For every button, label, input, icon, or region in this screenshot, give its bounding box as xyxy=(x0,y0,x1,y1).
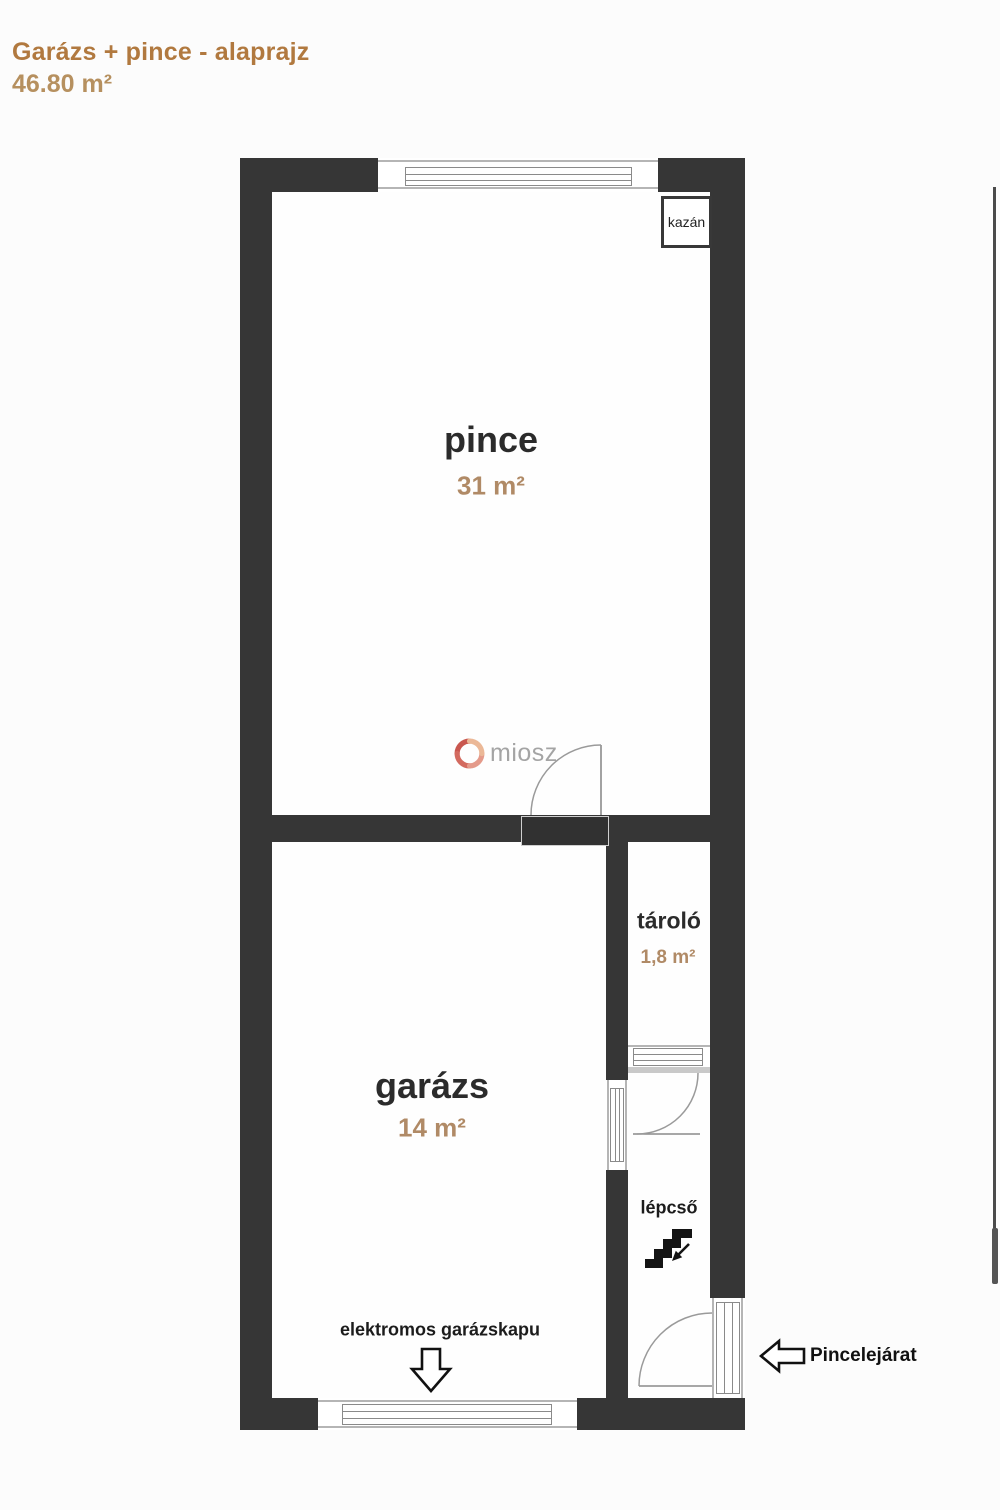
area-label-pince: 31 m² xyxy=(457,471,525,502)
door-leaf-symbol xyxy=(716,1302,740,1394)
page-title: Garázs + pince - alaprajz xyxy=(12,36,310,68)
header: Garázs + pince - alaprajz 46.80 m² xyxy=(12,36,310,100)
wall-bottom-left xyxy=(240,1398,318,1430)
scrollbar-thumb[interactable] xyxy=(992,1228,998,1284)
window-frame-line xyxy=(628,1045,710,1047)
room-label-tarolo: tároló xyxy=(637,908,701,935)
floorplan-page: Garázs + pince - alaprajz 46.80 m² xyxy=(0,0,1000,1510)
window-frame-line xyxy=(378,187,658,189)
area-label-tarolo: 1,8 m² xyxy=(641,947,696,969)
garage-door-label: elektromos garázskapu xyxy=(340,1320,540,1341)
wall-pince-garage-divider xyxy=(272,815,710,842)
storage-door-opening xyxy=(628,1043,710,1073)
heart-icon: ♥ xyxy=(465,741,472,753)
wall-garage-storage-divider xyxy=(606,842,628,1080)
door-leaf-symbol xyxy=(633,1048,703,1066)
plan-background xyxy=(240,158,745,1430)
garage-door-symbol xyxy=(342,1404,552,1425)
boiler-label: kazán xyxy=(668,214,705,230)
room-label-pince: pince xyxy=(444,419,538,461)
window-glass-symbol xyxy=(405,167,632,186)
entrance-label: Pincelejárat xyxy=(810,1345,917,1367)
room-label-garazs: garázs xyxy=(375,1065,489,1107)
wall-bottom-right xyxy=(577,1398,745,1430)
door-frame-line xyxy=(712,1298,714,1398)
door-frame-line xyxy=(318,1426,577,1428)
boiler-box: kazán xyxy=(661,196,712,248)
room-label-lepcso: lépcső xyxy=(640,1198,697,1219)
left-arrow-icon xyxy=(761,1341,804,1371)
garage-stairwell-window xyxy=(606,1080,628,1170)
door-frame-line xyxy=(318,1400,577,1402)
wall-garage-stair-divider xyxy=(606,1170,628,1398)
top-window xyxy=(378,158,658,192)
watermark-logo-icon: ♥ xyxy=(453,737,486,770)
sill-band xyxy=(628,1067,710,1073)
window-frame-line xyxy=(378,160,658,162)
watermark: ♥ miosz xyxy=(453,737,558,770)
window-glass-symbol xyxy=(610,1088,624,1162)
wall-left xyxy=(240,158,272,1430)
watermark-text: miosz xyxy=(490,739,558,768)
window-frame-line xyxy=(607,1080,609,1170)
total-area: 46.80 m² xyxy=(12,68,310,100)
area-label-garazs: 14 m² xyxy=(398,1113,466,1144)
garage-door-opening xyxy=(318,1398,577,1430)
pince-door-threshold xyxy=(521,816,609,846)
window-frame-line xyxy=(625,1080,627,1170)
door-frame-line xyxy=(741,1298,743,1398)
wall-right xyxy=(710,158,745,1298)
cellar-entrance-opening xyxy=(710,1298,745,1398)
image-edge-line xyxy=(993,187,996,1283)
